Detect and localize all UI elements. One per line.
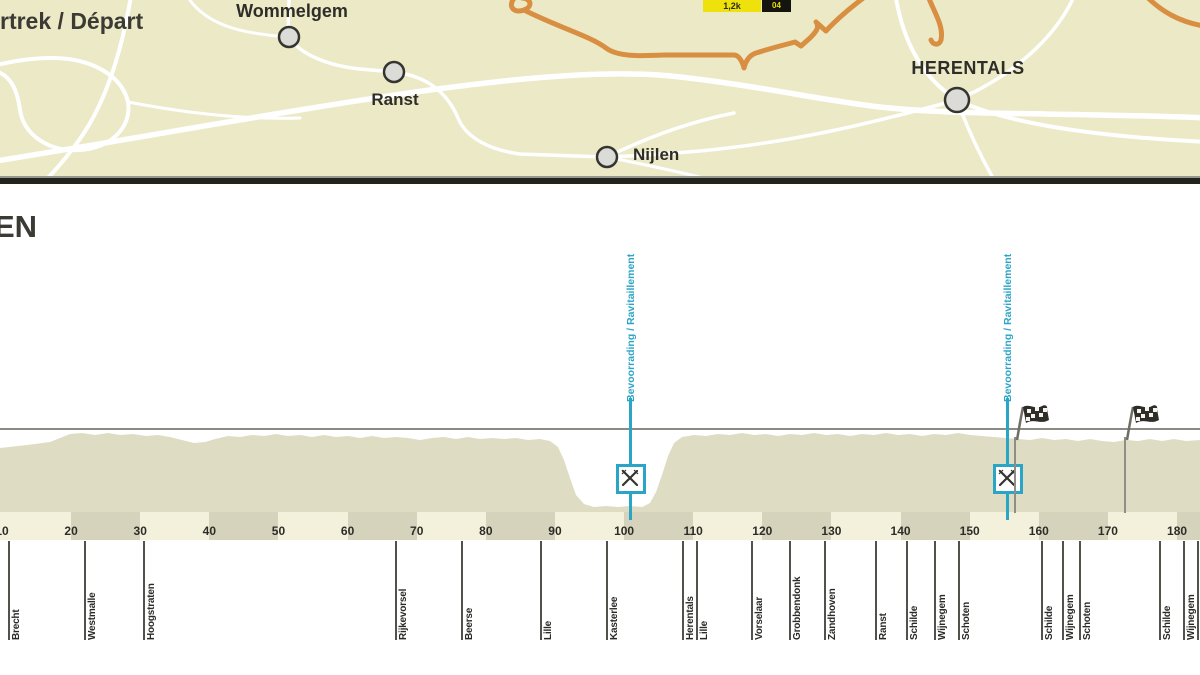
marker-herentals [945,88,969,112]
town-label: Kasterlee [609,597,620,640]
route-badge-black: 04 [762,0,791,12]
map-town-label-herentals: HERENTALS [893,58,1043,79]
depart-label: rtrek / Départ [0,8,143,35]
town-tick [1062,541,1064,640]
flag-pole [1014,437,1016,513]
town-label: Schoten [961,602,972,640]
town-label: Schilde [909,606,920,640]
town-tick [789,541,791,640]
town-tick [1159,541,1161,640]
town-tick [84,541,86,640]
map-town-label-wommelgem: Wommelgem [212,1,372,22]
map-town-label-ranst: Ranst [360,90,430,110]
town-label: Rijkevorsel [398,589,409,640]
map-canvas [0,0,1200,176]
flag-pole [1124,437,1126,513]
town-label: Vorselaar [754,597,765,640]
crossed-utensils-glyph [619,467,641,489]
town-label: Hoogstraten [146,583,157,640]
town-tick [606,541,608,640]
roadbook-page: rtrek / Départ Wommelgem Ranst Nijlen HE… [0,0,1200,675]
marker-wommelgem [279,27,299,47]
checkered-flag-icon [1010,403,1052,441]
town-label: Ranst [878,613,889,640]
town-label: Wijnegem [1186,594,1197,640]
town-tick [461,541,463,640]
town-label: Schilde [1162,606,1173,640]
town-tick [540,541,542,640]
town-strip: BrechtWestmalleHoogstratenRijkevorselBee… [0,540,1200,675]
town-tick [1183,541,1185,640]
town-tick [751,541,753,640]
town-tick [1197,541,1199,640]
checkered-flag-glyph [1010,403,1052,441]
town-label: Grobbendonk [792,577,803,640]
marker-ranst [384,62,404,82]
town-tick [143,541,145,640]
town-tick [1041,541,1043,640]
feed-zone-label: Bevoorrading / Ravitaillement [1003,254,1014,402]
map-town-label-nijlen: Nijlen [633,145,679,165]
profile-title-fragment: EN [0,209,37,245]
map-profile-divider [0,176,1200,184]
town-tick [696,541,698,640]
town-label: Lille [699,621,710,640]
town-label: Schilde [1044,606,1055,640]
feed-zone-label: Bevoorrading / Ravitaillement [626,254,637,402]
town-label: Lille [543,621,554,640]
town-tick [824,541,826,640]
town-tick [934,541,936,640]
town-label: Brecht [11,610,22,640]
town-label: Zandhoven [827,588,838,640]
feed-zone-icon [993,464,1023,494]
route-badge-yellow: 1,2k [703,0,761,12]
elevation-profile: EN Bevoorrading / RavitaillementBevoorra… [0,185,1200,540]
marker-nijlen [597,147,617,167]
town-label: Westmalle [87,593,98,640]
town-tick [682,541,684,640]
town-label: Wijnegem [937,594,948,640]
town-label: Beerse [464,608,475,640]
town-tick [1079,541,1081,640]
town-tick [395,541,397,640]
route-map: rtrek / Départ Wommelgem Ranst Nijlen HE… [0,0,1200,176]
town-label: Schoten [1082,602,1093,640]
town-tick [8,541,10,640]
race-route-line [511,0,1200,68]
checkered-flag-icon [1120,403,1162,441]
checkered-flag-glyph [1120,403,1162,441]
feed-zone-icon [616,464,646,494]
town-label: Herentals [685,596,696,640]
feed-zone-line [629,398,632,520]
town-tick [958,541,960,640]
town-label: Wijnegem [1065,594,1076,640]
